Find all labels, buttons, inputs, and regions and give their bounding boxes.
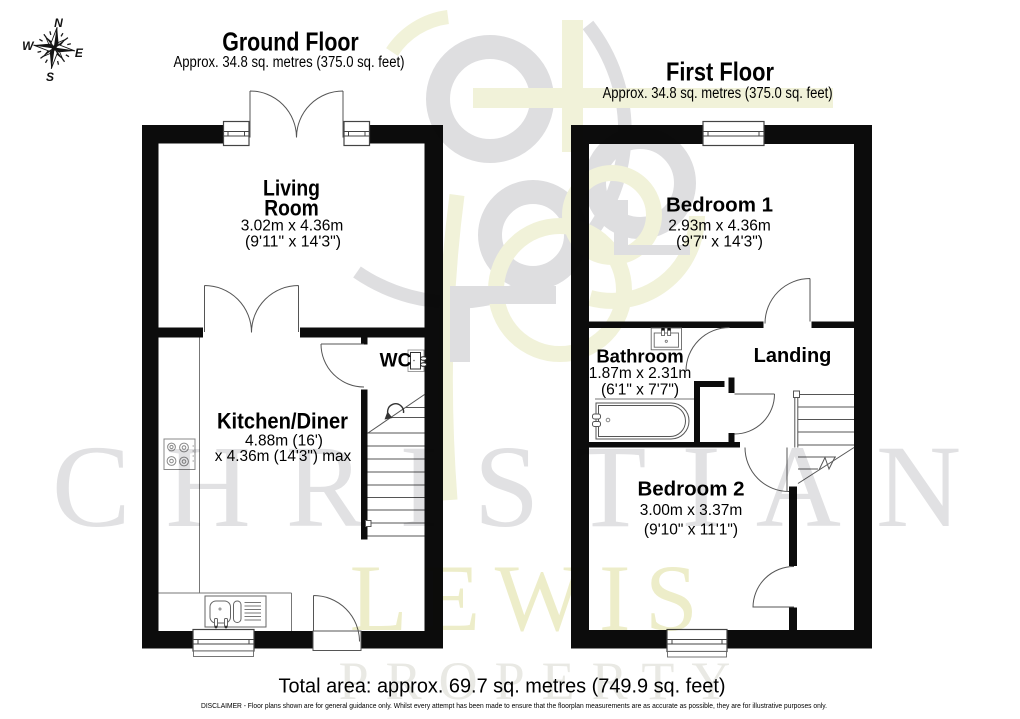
svg-text:W: W bbox=[22, 39, 35, 53]
svg-text:1.87m x 2.31m: 1.87m x 2.31m bbox=[589, 365, 692, 382]
svg-text:Total area: approx. 69.7 sq. m: Total area: approx. 69.7 sq. metres (749… bbox=[279, 675, 726, 698]
svg-text:Landing: Landing bbox=[754, 345, 832, 367]
svg-text:DISCLAIMER - Floor plans show: DISCLAIMER - Floor plans shown are for g… bbox=[201, 703, 827, 710]
svg-text:WC: WC bbox=[380, 351, 412, 372]
svg-text:Approx. 34.8 sq. metres (375.0: Approx. 34.8 sq. metres (375.0 sq. feet) bbox=[174, 54, 405, 71]
svg-text:(6'1" x 7'7"): (6'1" x 7'7") bbox=[601, 382, 679, 399]
svg-text:LEWIS: LEWIS bbox=[350, 545, 713, 651]
svg-text:CHRISTIAN: CHRISTIAN bbox=[52, 421, 996, 552]
svg-text:2.93m x 4.36m: 2.93m x 4.36m bbox=[668, 218, 771, 235]
svg-text:First Floor: First Floor bbox=[666, 57, 774, 87]
svg-text:3.02m x 4.36m: 3.02m x 4.36m bbox=[241, 218, 344, 235]
svg-text:Bathroom: Bathroom bbox=[596, 346, 683, 367]
svg-text:Approx. 34.8 sq. metres (375.0: Approx. 34.8 sq. metres (375.0 sq. feet) bbox=[603, 85, 833, 102]
svg-text:E: E bbox=[75, 46, 84, 60]
svg-text:S: S bbox=[46, 70, 54, 84]
svg-text:Ground Floor: Ground Floor bbox=[222, 27, 359, 57]
svg-text:(9'11" x 14'3"): (9'11" x 14'3") bbox=[245, 234, 341, 251]
svg-text:N: N bbox=[54, 16, 63, 30]
